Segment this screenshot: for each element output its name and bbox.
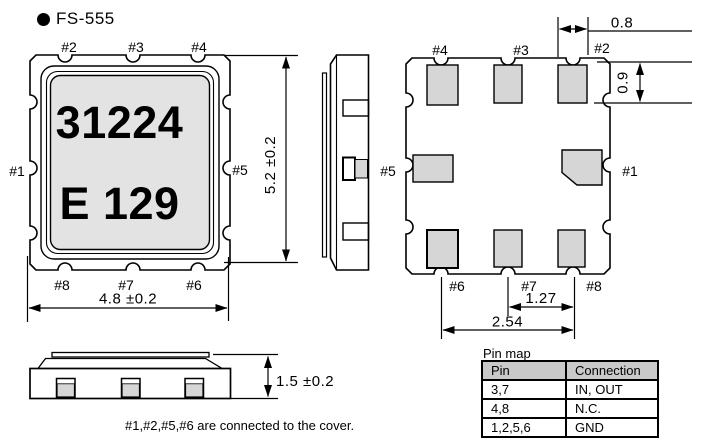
side-lid	[323, 73, 327, 257]
pad-4	[427, 65, 458, 105]
datasheet-page: FS-555	[0, 0, 706, 447]
top-view-pin-5-label: #5	[232, 162, 248, 178]
front-lid	[52, 353, 209, 358]
bottom-view-pin-4-label: #4	[432, 42, 448, 58]
pad-5	[413, 155, 453, 182]
pad-8	[558, 230, 585, 267]
dim-pitch-small-label: 1.27	[525, 290, 556, 307]
bottom-view-pin-1-label: #1	[622, 163, 638, 179]
pad-7	[494, 230, 522, 267]
pin-map-row: 4,8 N.C.	[482, 399, 658, 418]
pin-map-cell-connection: N.C.	[566, 399, 658, 418]
bottom-view-pin-5-label: #5	[380, 163, 396, 179]
bottom-view-pin-6-label: #6	[449, 278, 465, 294]
pin-map-cell-pin: 1,2,5,6	[482, 418, 566, 437]
front-view	[30, 353, 231, 399]
pad-3	[494, 65, 522, 103]
marking-line-1: 31224	[56, 97, 184, 148]
top-view-pin-6-label: #6	[186, 277, 202, 293]
top-view-pin-3-label: #3	[128, 39, 144, 55]
pin-map-table: Pin Connection 3,7 IN, OUT 4,8 N.C. 1,2,…	[481, 360, 659, 438]
pin-map-cell-pin: 4,8	[482, 399, 566, 418]
pin-map-header-connection: Connection	[566, 361, 658, 380]
side-pad-middle	[355, 160, 368, 179]
top-view	[30, 55, 230, 270]
pin-map-cell-connection: IN, OUT	[566, 380, 658, 399]
marking-line-2: E 129	[59, 178, 179, 229]
front-pad-1	[57, 379, 76, 398]
bottom-view-pin-3-label: #3	[513, 42, 529, 58]
bottom-view	[406, 58, 610, 274]
pin-map-cell-pin: 3,7	[482, 380, 566, 399]
pad-2	[558, 65, 587, 103]
front-step	[38, 359, 222, 369]
pad-6	[427, 230, 458, 268]
dim-height-label: 5.2 ±0.2	[262, 136, 279, 194]
front-pad-2	[122, 379, 141, 398]
dim-pad-width-label: 0.8	[611, 15, 633, 32]
dim-width-label: 4.8 ±0.2	[99, 291, 157, 308]
top-view-pin-2-label: #2	[61, 39, 77, 55]
top-view-pin-1-label: #1	[9, 163, 25, 179]
pin-map-header-pin: Pin	[482, 361, 566, 380]
side-view	[323, 55, 369, 270]
front-pad-3	[185, 379, 204, 398]
dim-thickness-label: 1.5 ±0.2	[276, 373, 334, 390]
cover-connection-note: #1,#2,#5,#6 are connected to the cover.	[125, 418, 354, 433]
pin-map-caption: Pin map	[483, 346, 531, 361]
pin-map-cell-connection: GND	[566, 418, 658, 437]
pin-map-row: 3,7 IN, OUT	[482, 380, 658, 399]
top-view-pin-8-label: #8	[54, 277, 70, 293]
bottom-view-pin-8-label: #8	[586, 278, 602, 294]
pin-map-header-row: Pin Connection	[482, 361, 658, 380]
dim-pad-height-label: 0.9	[615, 71, 632, 93]
dim-pitch-large-label: 2.54	[492, 314, 523, 331]
top-view-pin-4-label: #4	[191, 39, 207, 55]
pin-map-row: 1,2,5,6 GND	[482, 418, 658, 437]
bottom-view-pin-2-label: #2	[594, 40, 610, 56]
